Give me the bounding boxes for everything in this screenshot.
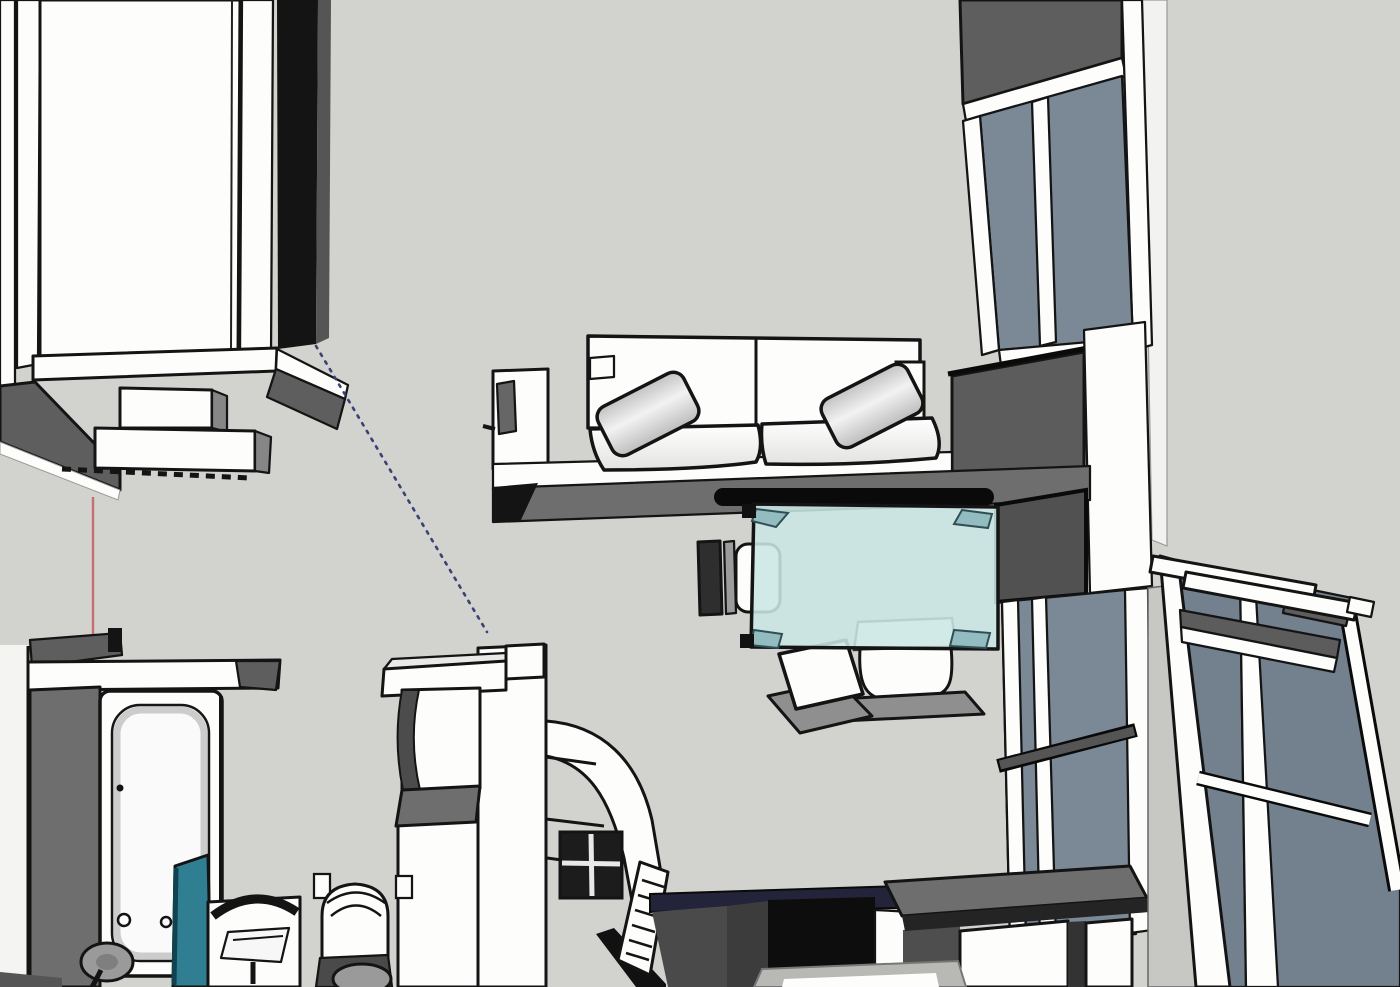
- glass-table[interactable]: [740, 504, 998, 649]
- table-clamp-bottom: [740, 634, 754, 648]
- window-pillar: [1084, 322, 1152, 593]
- hall-niche-sill: [396, 786, 480, 826]
- sofa[interactable]: [588, 336, 939, 470]
- chair-left-slat: [724, 541, 736, 614]
- slab-tab: [108, 628, 122, 652]
- grid-cabinet-mullion-h: [562, 863, 620, 864]
- table-corner-br: [950, 630, 990, 648]
- window-glass-upper: [980, 76, 1133, 350]
- radiator-box-front: [95, 428, 255, 471]
- radiator-box-back-cap: [212, 390, 227, 432]
- bathtub-handle: [118, 914, 130, 926]
- hall-wall-tab: [396, 876, 412, 898]
- bathtub-drain: [117, 785, 124, 792]
- radiator-box-front-cap: [255, 431, 271, 473]
- hall-column: [478, 645, 546, 987]
- table-corner-bl: [750, 630, 782, 648]
- door-jamb-left: [0, 0, 15, 432]
- chair-left-back: [698, 541, 722, 615]
- radiator-box-back: [120, 388, 212, 428]
- hall-wall-lower: [398, 818, 478, 987]
- wall-strip-left: [0, 645, 28, 987]
- table-clamp-top: [742, 504, 756, 518]
- table-corner-tr: [954, 510, 992, 528]
- sofa-arm-left: [590, 356, 614, 379]
- shower-screen[interactable]: [173, 855, 211, 987]
- scene-canvas[interactable]: [0, 0, 1400, 987]
- door-hinge-line: [231, 0, 232, 356]
- door-frame-stile: [17, 0, 40, 368]
- door-leaf[interactable]: [40, 0, 240, 365]
- parapet-return-shadow: [497, 381, 516, 434]
- hall-ledge-step: [506, 644, 544, 679]
- toilet-bowl: [333, 964, 391, 987]
- sink-drain: [96, 954, 118, 970]
- bathroom-wall-end: [236, 661, 280, 690]
- counter-cabinet-2: [1086, 919, 1132, 987]
- counter-cabinet-gap: [1068, 921, 1086, 987]
- model-viewport[interactable]: [0, 0, 1400, 987]
- shower-screen-edge: [174, 868, 176, 985]
- vanity-unit[interactable]: [208, 897, 300, 987]
- chair-br-back: [860, 647, 952, 699]
- bathroom-wall-face: [30, 687, 100, 987]
- door-edge-dark: [277, 0, 318, 349]
- tv-panel[interactable]: [996, 490, 1086, 602]
- door-edge-shadow: [316, 0, 331, 344]
- vanity-basin: [221, 928, 289, 962]
- counter-cabinet-1: [960, 921, 1068, 987]
- door-frame-right: [240, 0, 273, 357]
